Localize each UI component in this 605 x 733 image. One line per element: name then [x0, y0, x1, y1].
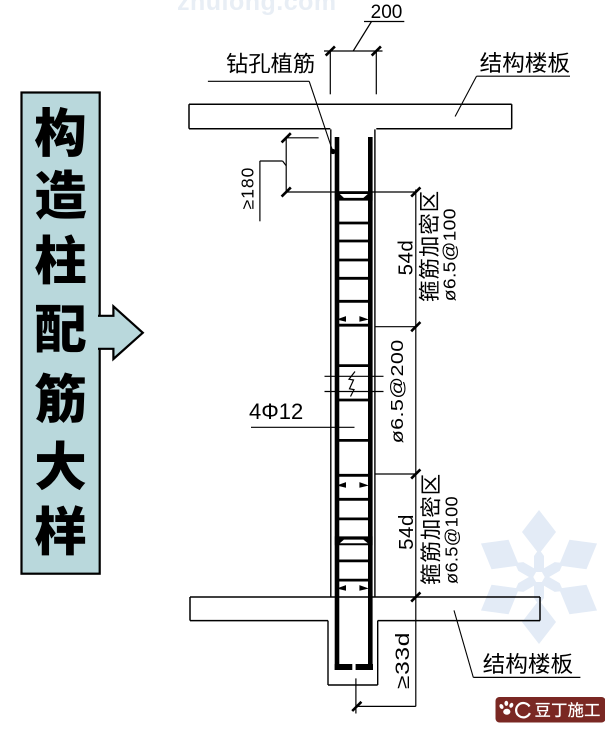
- svg-text:zhulong.com: zhulong.com: [177, 0, 337, 16]
- svg-text:4Φ12: 4Φ12: [249, 399, 303, 424]
- svg-text:200: 200: [371, 2, 403, 23]
- svg-text:≥180: ≥180: [238, 167, 258, 210]
- svg-text:ø6.5@100: ø6.5@100: [440, 208, 460, 301]
- svg-text:ø6.5@200: ø6.5@200: [387, 339, 407, 443]
- svg-text:54d: 54d: [394, 240, 417, 276]
- svg-text:≥33d: ≥33d: [393, 632, 414, 689]
- svg-text:54d: 54d: [395, 514, 418, 550]
- svg-text:ø6.5@100: ø6.5@100: [442, 496, 462, 584]
